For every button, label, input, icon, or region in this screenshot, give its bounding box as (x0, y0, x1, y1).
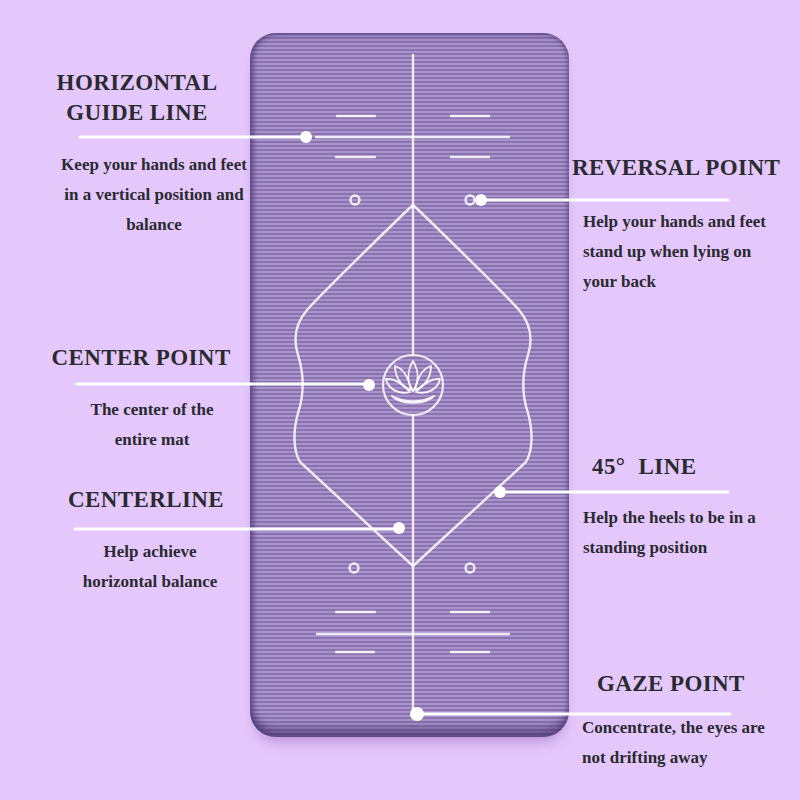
yoga-mat (250, 33, 569, 737)
annotation-horizontal-guide-line-description: Keep your hands and feet in a vertical p… (30, 150, 278, 240)
annotation-description: Help achieve horizontal balance (52, 537, 248, 597)
annotation-description: Concentrate, the eyes are not drifting a… (582, 713, 800, 773)
annotation-horizontal-guide-line-title: HORIZONTAL GUIDE LINE (27, 68, 247, 128)
annotation-centerline-title: CENTERLINE (60, 485, 232, 515)
annotation-description: Help your hands and feet stand up when l… (583, 207, 800, 297)
annotation-title: HORIZONTAL GUIDE LINE (27, 68, 247, 128)
annotation-reversal-point-title: REVERSAL POINT (572, 153, 800, 183)
annotation-gaze-point-title: GAZE POINT (597, 669, 787, 699)
annotation-title: GAZE POINT (597, 669, 787, 699)
annotation-description: Help the heels to be in a standing posit… (583, 503, 800, 563)
annotation-gaze-point-description: Concentrate, the eyes are not drifting a… (582, 713, 800, 773)
annotation-title: REVERSAL POINT (572, 153, 800, 183)
annotation-description: The center of the entire mat (58, 395, 246, 455)
yoga-mat-infographic: HORIZONTAL GUIDE LINE Keep your hands an… (0, 0, 800, 800)
annotation-reversal-point-description: Help your hands and feet stand up when l… (583, 207, 800, 297)
annotation-centerline-description: Help achieve horizontal balance (52, 537, 248, 597)
annotation-45-line-description: Help the heels to be in a standing posit… (583, 503, 800, 563)
annotation-title: 45° LINE (592, 452, 782, 482)
annotation-center-point-description: The center of the entire mat (58, 395, 246, 455)
annotation-45-line-title: 45° LINE (592, 452, 782, 482)
annotation-title: CENTERLINE (60, 485, 232, 515)
annotation-center-point-title: CENTER POINT (45, 343, 237, 373)
annotation-title: CENTER POINT (45, 343, 237, 373)
annotation-description: Keep your hands and feet in a vertical p… (30, 150, 278, 240)
